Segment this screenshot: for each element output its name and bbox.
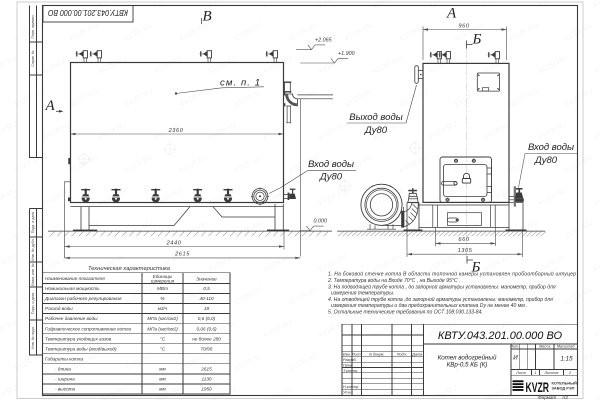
svg-text:Выход воды: Выход воды	[349, 112, 402, 123]
svg-text:Техническая характеристика: Техническая характеристика	[88, 266, 171, 272]
svg-text:Листов: Листов	[543, 371, 558, 375]
svg-text:КВТУ.043.201.00.000 ВО: КВТУ.043.201.00.000 ВО	[438, 330, 563, 342]
svg-text:Ду80: Ду80	[534, 155, 558, 166]
svg-text:+1.900: +1.900	[338, 51, 355, 57]
svg-text:Значение: Значение	[196, 277, 217, 282]
svg-text:мм: мм	[159, 377, 166, 382]
svg-text:Номинальная мощность: Номинальная мощность	[45, 286, 100, 291]
svg-text:Разраб.: Разраб.	[343, 358, 357, 362]
svg-text:Перв. примен.: Перв. примен.	[31, 15, 35, 39]
svg-text:Котел водогрейный: Котел водогрейный	[438, 355, 497, 362]
svg-text:2. Температура воды на Входе: 2. Температура воды на Входе 70°С , на В…	[327, 278, 460, 284]
svg-text:мм: мм	[159, 387, 166, 392]
svg-text:КВТУ.043.201.00.000 ВО: КВТУ.043.201.00.000 ВО	[48, 8, 128, 18]
svg-text:18: 18	[204, 306, 210, 311]
svg-text:1:15: 1:15	[560, 356, 573, 363]
svg-text:А: А	[45, 98, 56, 114]
svg-text:Рабочее давление воды: Рабочее давление воды	[45, 316, 98, 321]
svg-text:В: В	[203, 9, 212, 25]
svg-text:Справ. №: Справ. №	[31, 50, 35, 66]
svg-text:МПа (кгс/см2): МПа (кгс/см2)	[147, 316, 178, 321]
svg-text:4. На отводящей трубе котла ,: 4. На отводящей трубе котла ,до запорной…	[328, 296, 553, 303]
svg-text:70/95: 70/95	[201, 346, 213, 351]
svg-text:А3: А3	[561, 395, 568, 400]
svg-text:Температура воды (вход/выход): Температура воды (вход/выход)	[45, 346, 117, 351]
svg-text:И: И	[513, 355, 518, 362]
svg-text:Лист: Лист	[351, 353, 362, 357]
svg-text:Инв. № дубл.: Инв. № дубл.	[31, 238, 35, 260]
svg-text:Подп. и дата: Подп. и дата	[31, 293, 35, 314]
svg-text:°С: °С	[160, 346, 166, 351]
svg-text:2615: 2615	[200, 366, 212, 371]
svg-text:Ду80: Ду80	[319, 172, 343, 183]
svg-text:Дата: Дата	[411, 353, 422, 357]
svg-text:1950: 1950	[201, 387, 212, 392]
svg-text:Температура уходящих газов: Температура уходящих газов	[45, 336, 112, 341]
svg-text:1130: 1130	[201, 377, 211, 382]
svg-text:1. На боковой стенке котла В: 1. На боковой стенке котла В области топ…	[328, 270, 576, 277]
svg-text:Масса: Масса	[539, 345, 550, 349]
svg-text:1: 1	[534, 371, 536, 375]
svg-text:960: 960	[458, 23, 469, 29]
svg-text:660: 660	[458, 237, 469, 243]
svg-text:- ширина: - ширина	[55, 377, 75, 382]
svg-text:Габариты котла: Габариты котла	[45, 356, 83, 361]
svg-text:Лист: Лист	[515, 371, 526, 375]
svg-text:Подп. и дата: Подп. и дата	[31, 212, 35, 233]
svg-text:2615: 2615	[174, 252, 190, 258]
svg-text:Подп.: Подп.	[397, 353, 407, 357]
svg-text:Изм.: Изм.	[343, 353, 351, 357]
svg-text:Масштаб: Масштаб	[557, 345, 576, 349]
svg-text:2440: 2440	[166, 240, 182, 246]
svg-text:Вход воды: Вход воды	[528, 142, 574, 153]
svg-text:Гидравлическое сопротивление к: Гидравлическое сопротивление котла	[45, 326, 132, 331]
svg-text:А: А	[446, 6, 457, 22]
svg-text:Т.контр.: Т.контр.	[343, 369, 358, 373]
svg-text:ЗАВОД РЭП: ЗАВОД РЭП	[552, 386, 575, 391]
svg-text:0,06 (0,6): 0,06 (0,6)	[196, 326, 217, 331]
svg-text:3. На подводящей трубе котла: 3. На подводящей трубе котла , до запорн…	[328, 283, 556, 290]
svg-text:Лит.: Лит.	[510, 345, 520, 349]
svg-text:Ду80: Ду80	[364, 125, 388, 136]
svg-text:не более 280: не более 280	[192, 336, 221, 341]
svg-text:измерения температуры.: измерения температуры.	[331, 290, 394, 296]
svg-text:Н.контр.: Н.контр.	[343, 385, 359, 389]
svg-text:м3/ч: м3/ч	[158, 306, 168, 311]
svg-text:%: %	[160, 296, 164, 301]
svg-text:40-110: 40-110	[199, 296, 214, 301]
svg-text:мм: мм	[159, 366, 166, 371]
svg-text:5. Остальные технические треб: 5. Остальные технические требования по О…	[328, 309, 483, 315]
svg-text:измерения: измерения	[151, 279, 175, 284]
svg-text:0,6 (6,0): 0,6 (6,0)	[198, 316, 216, 321]
svg-text:N докум.: N докум.	[369, 353, 384, 357]
svg-text:- длина: - длина	[55, 366, 71, 371]
svg-text:Вход воды: Вход воды	[308, 159, 354, 170]
svg-text:- высота: - высота	[55, 387, 76, 392]
svg-text:измерения температуры и два пр: измерения температуры и два предохраните…	[331, 303, 528, 309]
svg-text:Наименование показателя: Наименование показателя	[45, 276, 105, 281]
svg-text:°С: °С	[160, 336, 166, 341]
svg-text:Инв. № подл.: Инв. № подл.	[31, 326, 35, 348]
svg-text:1305: 1305	[458, 248, 473, 254]
svg-text:Пров.: Пров.	[343, 363, 353, 367]
svg-text:Взам. инв. №: Взам. инв. №	[31, 263, 35, 285]
svg-text:0.000: 0.000	[314, 219, 328, 225]
svg-text:Диапазон рабочего регулировани: Диапазон рабочего регулирования	[44, 296, 122, 301]
svg-text:МВт: МВт	[157, 286, 168, 291]
svg-text:МПа (кгс/см2): МПа (кгс/см2)	[147, 326, 178, 331]
svg-text:КВр-0,5 КБ (К): КВр-0,5 КБ (К)	[447, 362, 488, 369]
svg-text:0,5: 0,5	[203, 286, 210, 291]
svg-text:Утв.: Утв.	[343, 390, 352, 394]
svg-text:Б: Б	[472, 32, 482, 48]
svg-text:+2.065: +2.065	[315, 37, 333, 43]
svg-text:Расход воды: Расход воды	[45, 306, 73, 311]
svg-text:2360: 2360	[168, 128, 184, 134]
svg-text:KVZR: KVZR	[526, 379, 550, 395]
svg-text:Формат: Формат	[538, 395, 556, 400]
